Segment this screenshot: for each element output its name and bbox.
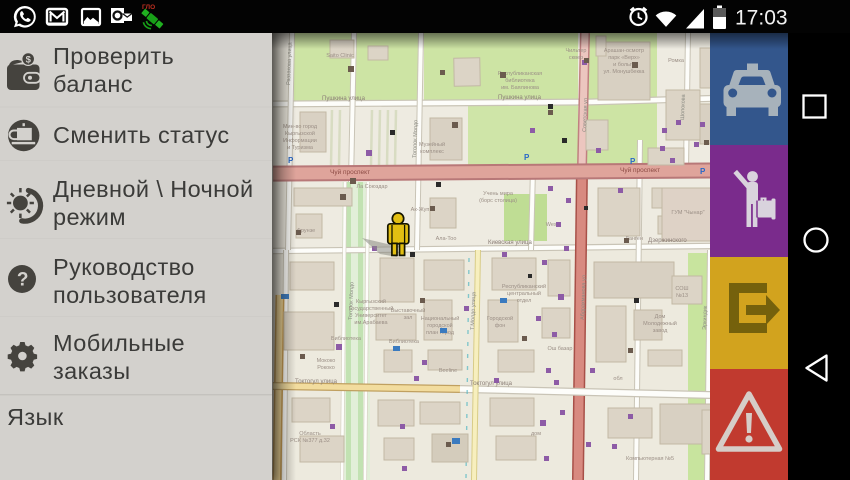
svg-text:Токтогул улица: Токтогул улица: [295, 379, 338, 385]
svg-text:Область: Область: [299, 431, 321, 437]
svg-text:отдел: отдел: [517, 298, 532, 304]
svg-text:Ромка: Ромка: [668, 58, 685, 64]
svg-text:Городской: Городской: [487, 315, 513, 322]
svg-text:фон: фон: [495, 323, 506, 329]
svg-text:им. Баялинова: им. Баялинова: [501, 85, 540, 91]
svg-text:Saito Clinic: Saito Clinic: [326, 53, 354, 59]
svg-text:Ош базар: Ош базар: [548, 346, 573, 352]
svg-text:Пушкина улица: Пушкина улица: [322, 96, 366, 102]
svg-text:Токтогул улица: Токтогул улица: [470, 381, 513, 387]
svg-text:обл: обл: [613, 376, 622, 382]
svg-text:Дом: Дом: [655, 314, 666, 320]
svg-text:Компьютерная №5: Компьютерная №5: [626, 456, 674, 462]
svg-text:и больго: и больго: [613, 62, 635, 68]
svg-text:Эркиндик: Эркиндик: [702, 305, 709, 330]
svg-text:им.Арабаева: им.Арабаева: [354, 320, 388, 326]
svg-text:зал: зал: [404, 315, 413, 321]
svg-text:Музейный: Музейный: [419, 141, 445, 148]
svg-text:ул. Монушбекка: ул. Монушбекка: [604, 69, 646, 75]
svg-text:Чуй проспект: Чуй проспект: [330, 168, 370, 176]
svg-text:17:03: 17:03: [735, 7, 788, 30]
svg-text:P: P: [700, 167, 706, 176]
svg-text:$: $: [26, 55, 32, 66]
svg-text:Кыргызский: Кыргызский: [356, 298, 386, 305]
svg-text:сквер: сквер: [569, 55, 583, 61]
svg-text:P: P: [630, 157, 636, 166]
svg-text:ГУМ "Чынар": ГУМ "Чынар": [671, 210, 704, 216]
svg-text:P: P: [524, 153, 530, 162]
svg-text:Рококо: Рококо: [317, 365, 335, 371]
svg-text:Учень мира: Учень мира: [483, 191, 514, 197]
svg-text:Ак-Жуп: Ак-Жуп: [411, 207, 430, 213]
svg-text:дом: дом: [531, 431, 541, 437]
svg-text:Выставочный: Выставочный: [391, 307, 426, 314]
svg-text:Мококо: Мококо: [317, 358, 336, 364]
svg-text:СОШ: СОШ: [675, 286, 688, 292]
svg-text:завод: завод: [653, 328, 668, 334]
svg-text:Чуй проспект: Чуй проспект: [620, 166, 660, 174]
svg-text:№13: №13: [676, 293, 688, 299]
svg-text:Молодежный: Молодежный: [643, 320, 677, 327]
svg-text:Библиотека: Библиотека: [389, 339, 420, 345]
svg-text:Республиканский: Республиканский: [502, 283, 546, 290]
svg-text:Киевская улица: Киевская улица: [488, 240, 532, 246]
svg-text:Дзержинского: Дзержинского: [648, 238, 687, 244]
svg-text:парк «Верх»: парк «Верх»: [608, 55, 640, 61]
svg-text:(борс столица): (борс столица): [479, 198, 517, 204]
svg-text:Beeline: Beeline: [439, 368, 457, 374]
svg-text:Библиотека: Библиотека: [331, 336, 362, 342]
svg-text:Ла Союздар: Ла Союздар: [356, 184, 387, 190]
svg-text:городской: городской: [427, 322, 453, 329]
svg-text:Университет: Университет: [355, 313, 387, 319]
svg-text:центральный: центральный: [507, 290, 541, 297]
svg-text:Государственный: Государственный: [349, 305, 394, 312]
svg-text:Пушкина улица: Пушкина улица: [498, 95, 542, 101]
svg-text:Советская ул: Советская ул: [582, 98, 589, 132]
svg-text:?: ?: [17, 269, 29, 290]
svg-text:библиотека: библиотека: [505, 78, 535, 84]
svg-text:Шопокова: Шопокова: [680, 93, 687, 120]
svg-text:Национальный: Национальный: [421, 315, 460, 322]
svg-text:Ала-Тоо: Ала-Тоо: [436, 236, 457, 242]
svg-text:комплекс: комплекс: [420, 149, 444, 155]
svg-text:РСК №377 д.32: РСК №377 д.32: [290, 438, 330, 444]
